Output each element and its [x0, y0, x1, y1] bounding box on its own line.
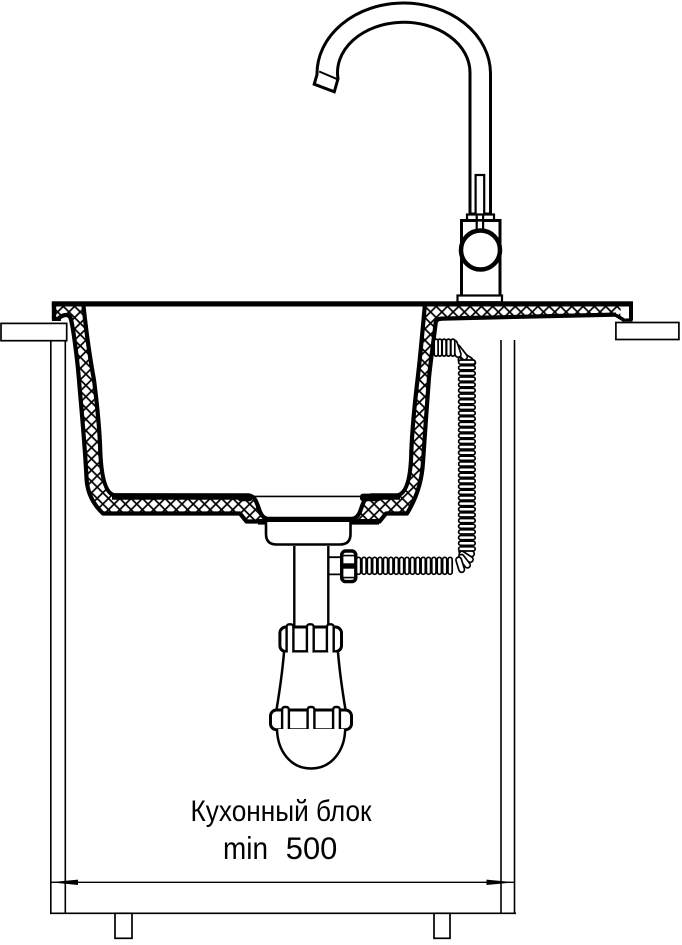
- svg-text:min: min: [223, 830, 268, 866]
- svg-text:Кухонный блок: Кухонный блок: [191, 795, 373, 828]
- svg-text:500: 500: [286, 830, 338, 866]
